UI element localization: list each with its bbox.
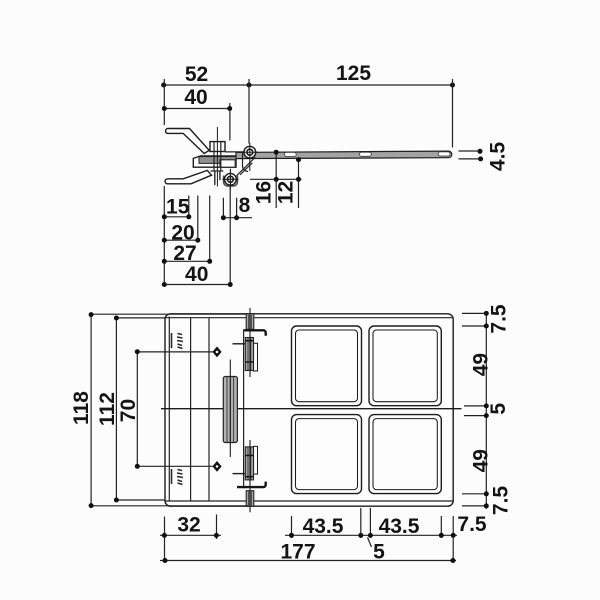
- svg-text:49: 49: [470, 449, 493, 472]
- svg-text:70: 70: [117, 399, 140, 422]
- svg-text:43.5: 43.5: [379, 515, 420, 538]
- svg-text:40: 40: [184, 86, 207, 109]
- svg-text:52: 52: [185, 63, 208, 86]
- svg-text:177: 177: [280, 541, 315, 564]
- svg-text:27: 27: [173, 242, 196, 265]
- svg-text:8: 8: [239, 194, 251, 217]
- svg-text:125: 125: [336, 62, 371, 85]
- svg-text:43.5: 43.5: [303, 515, 344, 538]
- svg-text:7.5: 7.5: [487, 304, 510, 334]
- svg-text:112: 112: [96, 392, 119, 426]
- svg-text:15: 15: [166, 196, 190, 219]
- svg-text:49: 49: [470, 353, 493, 376]
- svg-text:4.5: 4.5: [487, 142, 510, 172]
- svg-text:5: 5: [487, 403, 510, 415]
- svg-text:118: 118: [70, 391, 93, 425]
- svg-text:12: 12: [275, 181, 298, 204]
- svg-text:40: 40: [185, 263, 208, 286]
- svg-text:32: 32: [177, 514, 200, 537]
- svg-text:16: 16: [252, 181, 275, 204]
- svg-text:7.5: 7.5: [490, 486, 513, 516]
- svg-text:7.5: 7.5: [457, 513, 487, 536]
